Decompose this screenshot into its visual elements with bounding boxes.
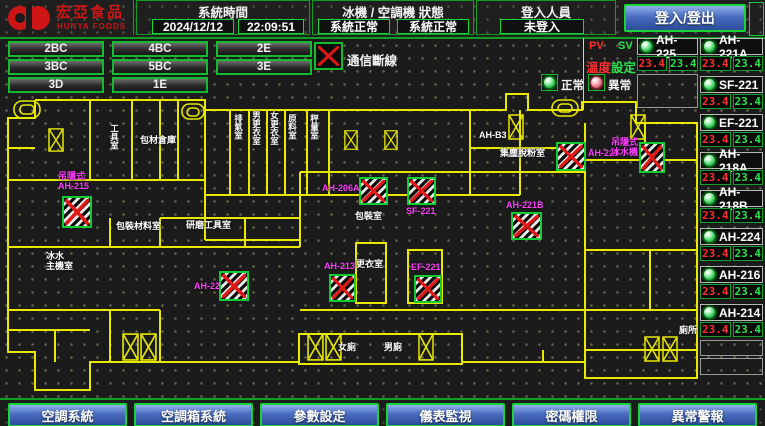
equipment-values: 23.4 23.4	[700, 132, 763, 147]
comm-lost-x-icon	[513, 214, 540, 238]
sv-value: 23.4	[733, 170, 764, 185]
pv-value: 23.4	[700, 322, 731, 337]
ahu-device-marker[interactable]	[219, 271, 249, 301]
equipment-values: 23.4 23.4	[700, 284, 763, 299]
logo-subtitle: HUNYA FOODS	[57, 22, 126, 31]
pv-label: PV	[589, 40, 604, 52]
device-label: EF-221	[411, 263, 441, 273]
room-label: 包裝材料室	[116, 222, 161, 232]
bottom-menu-bar: 空調系統空調箱系統參數設定儀表監視密碼權限異常警報	[0, 398, 765, 426]
room-label: 研磨工具室	[186, 221, 231, 231]
room-label: 冰水 主機室	[46, 252, 73, 271]
room-label: 包材倉庫	[140, 136, 176, 146]
pv-value: 23.4	[637, 56, 667, 71]
floor-button-2bc[interactable]: 2BC	[8, 41, 104, 57]
equipment-values: 23.4 23.4	[700, 246, 763, 261]
equipment-unit-ah-214[interactable]: AH-214	[700, 304, 763, 321]
pv-value: 23.4	[700, 284, 731, 299]
sv-value: 23.4	[733, 132, 764, 147]
status-led-icon	[703, 306, 716, 319]
equipment-name: AH-224	[719, 230, 760, 244]
device-label: AH-221B	[506, 201, 544, 211]
pv-value: 23.4	[700, 132, 731, 147]
floor-button-1e[interactable]: 1E	[112, 77, 208, 93]
status-led-icon	[703, 268, 716, 281]
abnormal-led-icon	[588, 74, 605, 91]
menu-button-4[interactable]: 密碼權限	[512, 403, 631, 426]
floor-button-5bc[interactable]: 5BC	[112, 59, 208, 75]
room-label: 包裝室	[355, 212, 382, 222]
floor-button-3bc[interactable]: 3BC	[8, 59, 104, 75]
status-led-icon	[703, 154, 716, 167]
sv-value: 23.4	[733, 284, 764, 299]
comm-lost-x-icon	[331, 276, 354, 300]
comm-lost-icon	[314, 42, 343, 70]
panel-divider	[583, 38, 584, 110]
menu-button-1[interactable]: 空調箱系統	[134, 403, 253, 426]
equipment-unit-sf-221[interactable]: SF-221	[700, 76, 763, 93]
status-led-icon	[703, 78, 716, 91]
device-label: AH-206A	[322, 184, 360, 194]
normal-label: 正常	[561, 77, 584, 93]
sv-value: 23.4	[733, 56, 764, 71]
comm-lost-x-icon	[416, 277, 440, 301]
device-label: 吊隱式 AH-215	[58, 172, 89, 191]
floor-button-3e[interactable]: 3E	[216, 59, 312, 75]
equipment-unit-ah221a[interactable]: AH-221A	[700, 38, 763, 55]
room-label: 集塵脫粉室	[500, 149, 545, 159]
equipment-name: EF-221	[719, 116, 758, 130]
status-led-icon	[640, 40, 653, 53]
sv-label: SV	[618, 40, 633, 52]
pv-value: 23.4	[700, 170, 731, 185]
normal-led-icon	[541, 74, 558, 91]
system-time-label: 系統時間	[137, 1, 309, 21]
ahu-device-marker[interactable]	[414, 275, 442, 303]
sv-value: 23.4	[669, 56, 699, 71]
room-label: 女廁	[338, 343, 356, 353]
comm-lost-x-icon	[64, 198, 90, 226]
setpoint-label: 溫度設定	[586, 57, 636, 76]
setpoint-label-green: 設定	[611, 61, 636, 75]
comm-lost-label: 通信斷線	[347, 50, 397, 69]
room-label: 廁所	[679, 326, 697, 336]
pv-value: 23.4	[700, 208, 731, 223]
ahu-device-marker[interactable]	[359, 177, 388, 205]
device-label: AH-213	[324, 262, 355, 272]
login-logout-button[interactable]: 登入/登出	[624, 4, 746, 32]
empty-equipment-slot	[637, 74, 698, 108]
equipment-unit-ef-221[interactable]: EF-221	[700, 114, 763, 131]
sv-value: 23.4	[733, 208, 764, 223]
sv-value: 23.4	[733, 322, 764, 337]
setpoint-label-red: 溫度	[586, 61, 611, 75]
menu-button-5[interactable]: 異常警報	[638, 403, 757, 426]
pv-value: 23.4	[700, 56, 731, 71]
company-logo: 宏亞食品 HUNYA FOODS	[0, 0, 134, 35]
floor-button-4bc[interactable]: 4BC	[112, 41, 208, 57]
empty-equipment-slot	[700, 340, 763, 356]
room-label: AH-B3	[479, 131, 507, 141]
ahu-device-marker[interactable]	[511, 212, 542, 240]
device-label: 吊隱式 冰水機	[611, 138, 638, 157]
room-label: 更衣室	[356, 260, 383, 270]
ahu-device-marker[interactable]	[62, 196, 92, 228]
menu-button-0[interactable]: 空調系統	[8, 403, 127, 426]
menu-button-3[interactable]: 儀表監視	[386, 403, 505, 426]
comm-lost-x-icon	[361, 179, 386, 203]
ahu-device-marker[interactable]	[639, 142, 665, 173]
equipment-values: 23.4 23.4	[700, 94, 763, 109]
equipment-unit-ah-218b[interactable]: AH-218B	[700, 190, 763, 207]
comm-lost-x-icon	[221, 273, 247, 299]
ahu-device-marker[interactable]	[407, 177, 436, 205]
room-label: 男廁	[384, 343, 402, 353]
login-user-value: 未登入	[500, 19, 584, 34]
menu-button-2[interactable]: 參數設定	[260, 403, 379, 426]
ahu-device-marker[interactable]	[556, 142, 586, 171]
equipment-values: 23.4 23.4	[700, 208, 763, 223]
top-bar: 宏亞食品 HUNYA FOODS 系統時間 2024/12/12 22:09:5…	[0, 0, 765, 39]
abnormal-label: 異常	[608, 77, 631, 93]
status-led-icon	[703, 192, 716, 205]
empty-equipment-slot	[700, 358, 763, 375]
system-time-value: 22:09:51	[238, 19, 304, 34]
equipment-values: 23.4 23.4	[637, 56, 698, 71]
status-led-icon	[703, 116, 716, 129]
pv-value: 23.4	[700, 94, 731, 109]
floor-button-2e[interactable]: 2E	[216, 41, 312, 57]
equipment-name: SF-221	[719, 78, 758, 92]
equipment-values: 23.4 23.4	[700, 322, 763, 337]
room-label: 工具室	[109, 124, 119, 150]
comm-lost-x-icon	[409, 179, 434, 203]
room-label: 秤量室	[309, 114, 319, 140]
comm-lost-x-icon	[641, 144, 663, 171]
equipment-values: 23.4 23.4	[700, 170, 763, 185]
status-led-icon	[703, 230, 716, 243]
status-led-icon	[703, 40, 716, 53]
equipment-unit-ah-224[interactable]: AH-224	[700, 228, 763, 245]
equipment-values: 23.4 23.4	[700, 56, 763, 71]
chiller-status-value: 系統正常	[318, 19, 390, 34]
equipment-unit-ah-216[interactable]: AH-216	[700, 266, 763, 283]
equipment-name: AH-214	[719, 306, 760, 320]
hunya-logo-icon	[6, 4, 52, 33]
pv-value: 23.4	[700, 246, 731, 261]
room-label: 原料室	[287, 114, 297, 140]
room-label: 女更衣室	[269, 111, 279, 145]
sv-value: 23.4	[733, 94, 764, 109]
sv-value: 23.4	[733, 246, 764, 261]
device-label: SF-221	[406, 207, 436, 217]
comm-lost-x-icon	[558, 144, 584, 169]
ahu-status-value: 系統正常	[397, 19, 469, 34]
room-label: 排氣室	[233, 114, 243, 140]
room-label: 男更衣室	[251, 111, 261, 145]
system-date-value: 2024/12/12	[152, 19, 234, 34]
corner-panel	[749, 2, 764, 36]
equipment-unit-ah-218a[interactable]: AH-218A	[700, 152, 763, 169]
floor-button-3d[interactable]: 3D	[8, 77, 104, 93]
logo-title: 宏亞食品	[56, 5, 124, 20]
hmi-screen: 宏亞食品 HUNYA FOODS 系統時間 2024/12/12 22:09:5…	[0, 0, 765, 426]
equipment-unit-ah225[interactable]: AH-225	[637, 38, 698, 55]
ahu-device-marker[interactable]	[329, 274, 356, 302]
equipment-name: AH-216	[719, 268, 760, 282]
